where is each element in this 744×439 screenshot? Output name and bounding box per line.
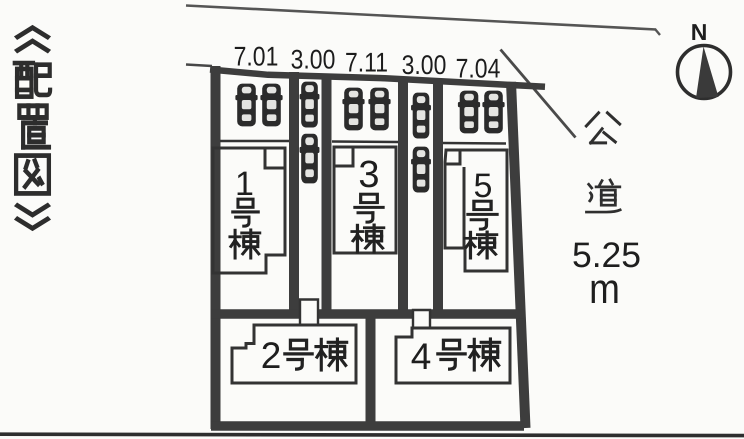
svg-text:7.04: 7.04 <box>456 54 501 84</box>
svg-text:3.00: 3.00 <box>291 45 336 75</box>
svg-text:5: 5 <box>474 167 493 205</box>
svg-text:N: N <box>691 19 708 45</box>
svg-text:7.11: 7.11 <box>345 48 388 78</box>
svg-text:3.00: 3.00 <box>402 50 447 80</box>
svg-text:7.01: 7.01 <box>234 42 279 72</box>
svg-text:2: 2 <box>261 335 282 376</box>
svg-text:4: 4 <box>411 336 432 377</box>
svg-text:3: 3 <box>358 154 379 196</box>
svg-text:m: m <box>589 265 620 312</box>
svg-text:1: 1 <box>235 165 254 203</box>
